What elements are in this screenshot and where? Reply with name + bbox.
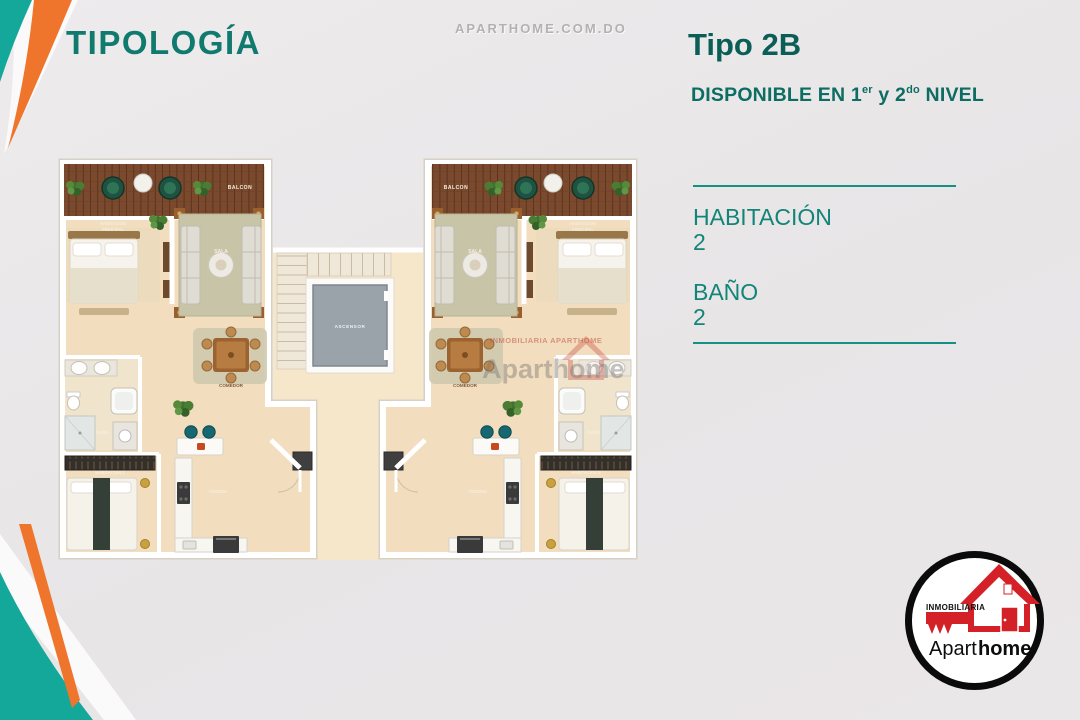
label-bano-right: BAÑO — [588, 430, 602, 435]
label-balcon-right: BALCON — [444, 185, 468, 191]
bar-stool — [185, 426, 197, 438]
logo-tagline: INMOBILIARIA — [926, 603, 985, 612]
floor-plan: BALCON HABITACION PRINCIPAL SALA COMEDOR… — [55, 152, 641, 568]
availability-mid: y 2 — [873, 84, 906, 106]
label-ascensor: ASCENSOR — [335, 324, 366, 329]
bed-headboard — [68, 231, 140, 239]
label-habitacion2-right: HABITACION 2 — [571, 470, 601, 475]
stairs — [277, 253, 307, 369]
master-bedroom — [66, 228, 170, 315]
label-habitacion2-left: HABITACION 2 — [95, 470, 125, 475]
availability-post: NIVEL — [920, 84, 984, 106]
lamp — [141, 479, 150, 488]
toilet — [68, 396, 80, 410]
availability-sup2: do — [906, 84, 920, 96]
top-watermark: APARTHOME.COM.DO — [455, 21, 627, 36]
logo-name-bold: home — [978, 638, 1031, 660]
label-habprincipal1-left: HABITACION — [100, 221, 126, 226]
availability-text: DISPONIBLE EN 1er y 2do NIVEL — [691, 84, 984, 107]
bar-stool — [203, 426, 215, 438]
spec-divider-bottom — [693, 342, 956, 344]
availability-pre: DISPONIBLE EN 1 — [691, 84, 862, 106]
sink — [94, 362, 110, 375]
label-comedor-left: COMEDOR — [219, 383, 244, 388]
kitchen-sink — [183, 541, 196, 549]
page-title: TIPOLOGÍA — [66, 24, 261, 62]
spec-value-bano: 2 — [693, 305, 706, 330]
unit-type-title: Tipo 2B — [688, 27, 801, 63]
patio-table — [134, 174, 152, 192]
dresser — [163, 242, 170, 272]
bed-runner — [93, 478, 110, 550]
spec-label-bano: BAÑO — [693, 280, 758, 305]
cooktop — [177, 482, 190, 504]
sofa — [242, 226, 261, 304]
label-comedor-right: COMEDOR — [453, 383, 478, 388]
aparthome-logo: INMOBILIARIA Apart home — [902, 548, 1047, 693]
closet — [65, 456, 155, 470]
label-sala-right: SALA — [468, 249, 482, 255]
balcony — [64, 164, 264, 218]
label-cocina-left: COCINA — [209, 489, 228, 494]
sofa — [181, 226, 200, 304]
label-cocina-right: COCINA — [469, 489, 488, 494]
spec-divider-top — [693, 185, 956, 187]
lamp — [141, 540, 150, 549]
label-habprincipal2-right: PRINCIPAL — [572, 227, 595, 232]
spec-label-habitacion: HABITACIÓN — [693, 205, 832, 230]
label-bano-left: BAÑO — [96, 430, 110, 435]
availability-sup1: er — [862, 84, 873, 96]
logo-name-regular: Apart — [929, 638, 977, 660]
sink — [71, 362, 87, 375]
bathroom — [63, 357, 140, 452]
label-balcon-left: BALCON — [228, 185, 252, 191]
stair-landing — [307, 253, 391, 276]
bed-bench — [79, 308, 129, 315]
spec-value-habitacion: 2 — [693, 230, 706, 255]
label-habprincipal2-left: PRINCIPAL — [102, 227, 125, 232]
label-habprincipal1-right: HABITACION — [570, 221, 596, 226]
label-sala-left: SALA — [214, 249, 228, 255]
